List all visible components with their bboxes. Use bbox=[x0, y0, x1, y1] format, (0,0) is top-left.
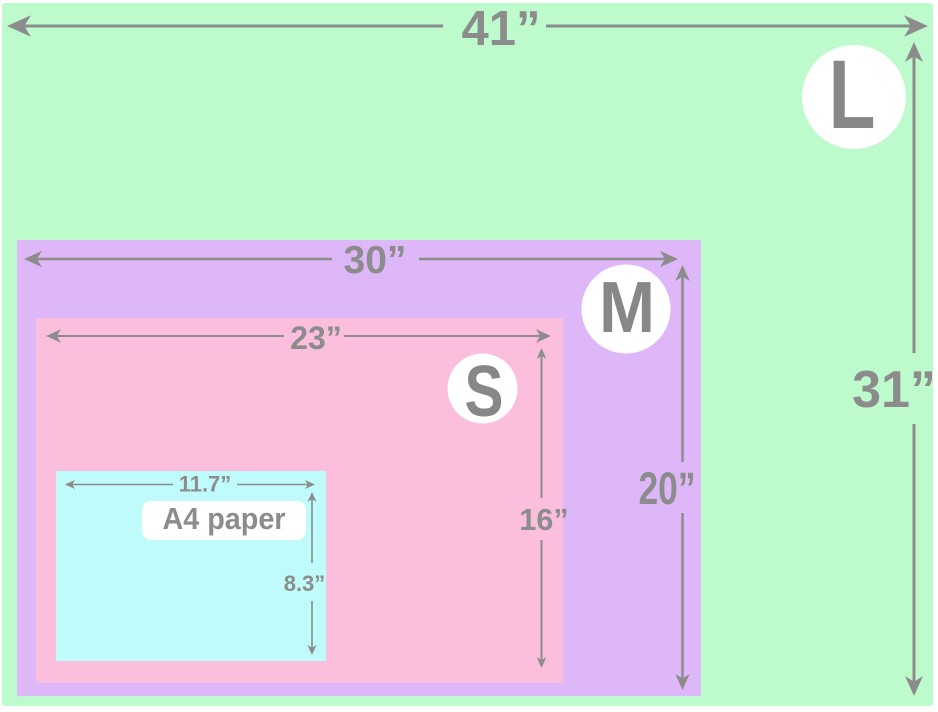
svg-text:30”: 30” bbox=[344, 239, 407, 282]
svg-text:23”: 23” bbox=[290, 320, 342, 356]
svg-text:31”: 31” bbox=[852, 361, 936, 419]
svg-text:16”: 16” bbox=[519, 503, 568, 537]
svg-text:20”: 20” bbox=[639, 463, 696, 514]
svg-text:A4 paper: A4 paper bbox=[163, 501, 286, 536]
svg-text:41”: 41” bbox=[461, 2, 540, 56]
svg-text:M: M bbox=[599, 268, 655, 348]
svg-text:11.7”: 11.7” bbox=[179, 472, 232, 497]
svg-text:S: S bbox=[465, 352, 504, 432]
svg-text:L: L bbox=[829, 40, 876, 149]
svg-text:8.3”: 8.3” bbox=[284, 571, 326, 596]
